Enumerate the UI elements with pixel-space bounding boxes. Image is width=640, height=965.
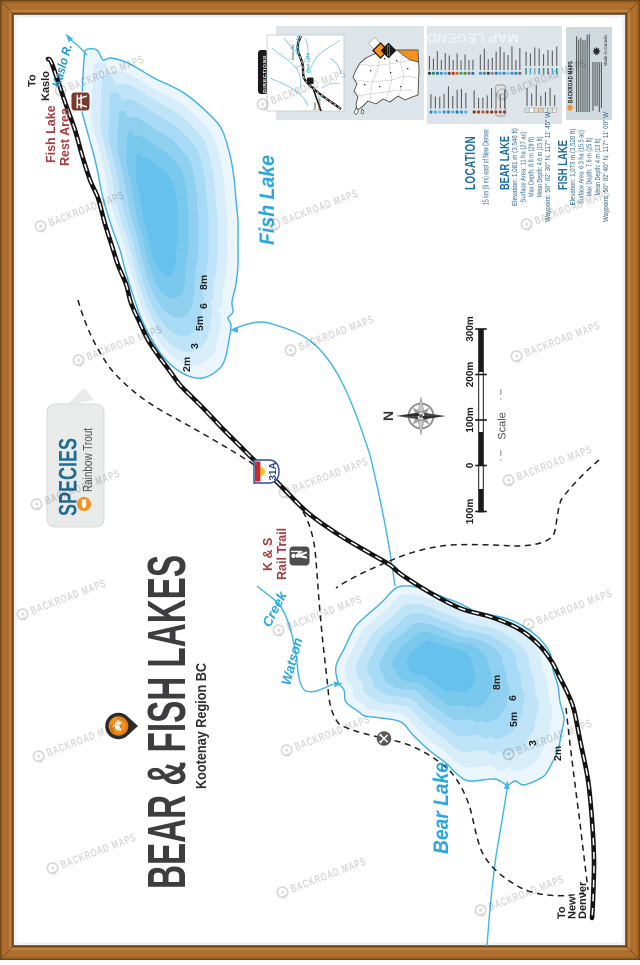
svg-text:0: 0 xyxy=(465,462,476,468)
svg-text:100m: 100m xyxy=(465,499,476,525)
svg-text:Rail Trail: Rail Trail xyxy=(275,528,289,580)
svg-text:Bear Lake: Bear Lake xyxy=(306,52,311,73)
svg-text:5m: 5m xyxy=(194,316,206,331)
svg-text:K & S: K & S xyxy=(261,538,275,571)
svg-text:Waypoint: 50° 02′ 30″ N, 117°: Waypoint: 50° 02′ 30″ N, 117° 11′ 45″ W xyxy=(543,112,552,222)
svg-text:2m: 2m xyxy=(181,357,193,372)
svg-text:31A: 31A xyxy=(268,462,279,480)
svg-text:To: To xyxy=(27,74,39,87)
svg-text:6: 6 xyxy=(198,303,210,309)
svg-text:6: 6 xyxy=(507,695,519,701)
svg-text:Kootenay Region BC: Kootenay Region BC xyxy=(194,663,210,789)
svg-text:Denver: Denver xyxy=(318,97,322,110)
svg-text:Bear Lake: Bear Lake xyxy=(430,762,453,854)
svg-text:8m: 8m xyxy=(198,275,210,290)
svg-text:3: 3 xyxy=(189,343,201,349)
svg-text:8m: 8m xyxy=(491,675,503,690)
svg-text:Waypoint: 50° 02′ 40″ N, 117°: Waypoint: 50° 02′ 40″ N, 117° 11′ 00″ W xyxy=(601,112,610,222)
svg-text:Kaslo Rd: Kaslo Rd xyxy=(291,45,295,60)
svg-text:300m: 300m xyxy=(465,316,476,342)
svg-text:Fish Lake: Fish Lake xyxy=(256,155,279,245)
svg-text:Denver: Denver xyxy=(577,881,589,919)
svg-text:200m: 200m xyxy=(465,362,476,388)
svg-text:100m: 100m xyxy=(465,407,476,433)
svg-text:Fish Lake: Fish Lake xyxy=(296,35,301,55)
svg-text:Scale: Scale xyxy=(497,412,509,440)
svg-text:N: N xyxy=(380,411,396,421)
svg-text:LOCATION: LOCATION xyxy=(462,136,479,190)
svg-text:MAP LEGEND: MAP LEGEND xyxy=(427,31,519,46)
svg-text:BEAR & FISH LAKES: BEAR & FISH LAKES xyxy=(137,555,197,889)
svg-text:Made in Canada: Made in Canada xyxy=(603,35,608,66)
svg-text:5m: 5m xyxy=(508,712,520,727)
svg-text:15 km (9 mi) east of New Denve: 15 km (9 mi) east of New Denver xyxy=(482,129,491,205)
svg-text:Rest Area: Rest Area xyxy=(58,107,72,166)
svg-text:2m: 2m xyxy=(552,746,564,761)
svg-text:New: New xyxy=(313,102,317,110)
svg-text:Fish Lake: Fish Lake xyxy=(44,105,58,163)
